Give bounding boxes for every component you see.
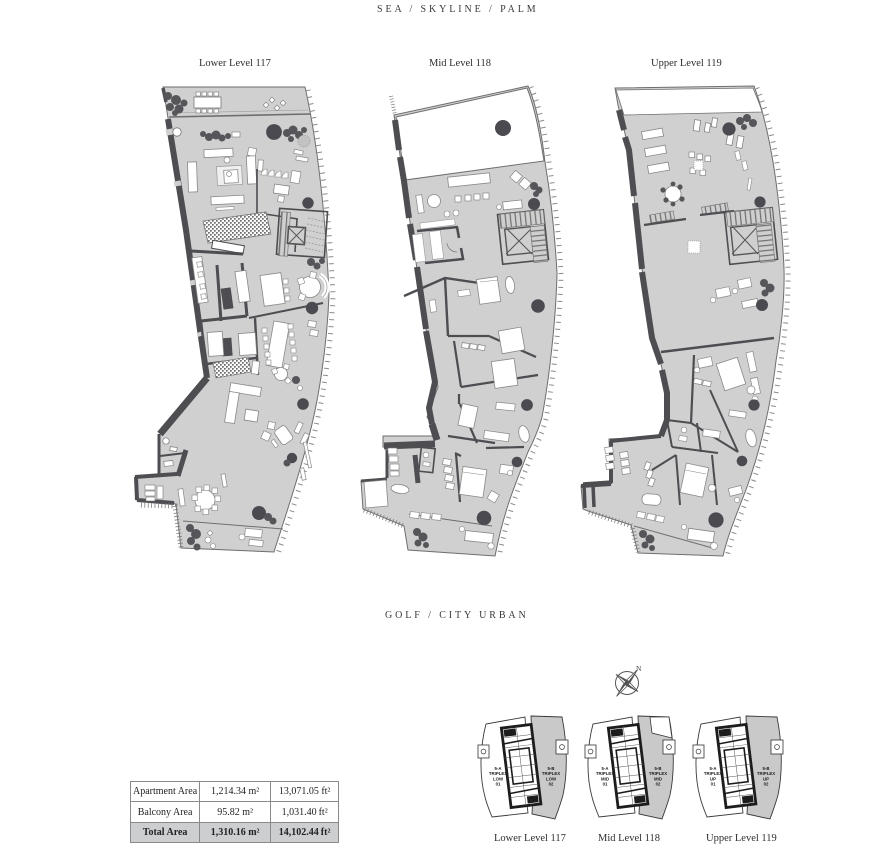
- svg-text:01: 01: [711, 782, 716, 787]
- svg-text:01: 01: [496, 782, 501, 787]
- svg-text:01: 01: [603, 782, 608, 787]
- svg-text:02: 02: [549, 782, 554, 787]
- svg-text:02: 02: [764, 782, 769, 787]
- svg-text:02: 02: [656, 782, 661, 787]
- svg-text:N: N: [636, 664, 642, 673]
